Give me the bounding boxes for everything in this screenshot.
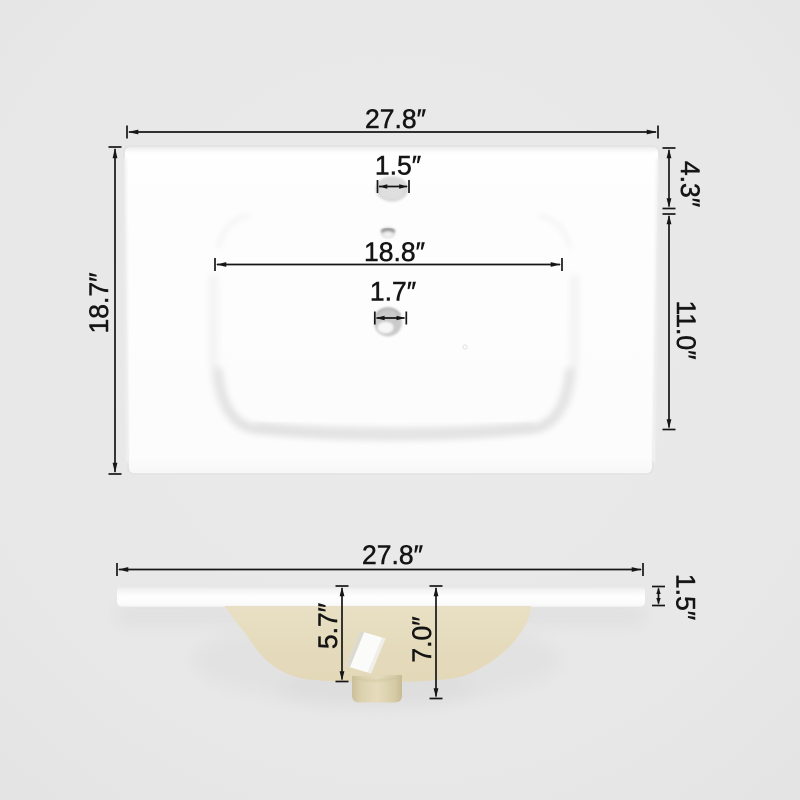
svg-text:18.8″: 18.8″ <box>364 237 425 267</box>
svg-text:5.7″: 5.7″ <box>313 603 343 649</box>
svg-text:1.5″: 1.5″ <box>375 151 421 181</box>
svg-text:7.0″: 7.0″ <box>407 616 437 662</box>
svg-text:1.7″: 1.7″ <box>370 277 416 307</box>
svg-text:4.3″: 4.3″ <box>675 161 705 207</box>
svg-text:18.7″: 18.7″ <box>84 273 114 334</box>
svg-text:11.0″: 11.0″ <box>671 301 701 360</box>
svg-text:27.8″: 27.8″ <box>365 104 426 134</box>
svg-text:27.8″: 27.8″ <box>362 540 423 570</box>
svg-text:1.5″: 1.5″ <box>671 574 701 620</box>
